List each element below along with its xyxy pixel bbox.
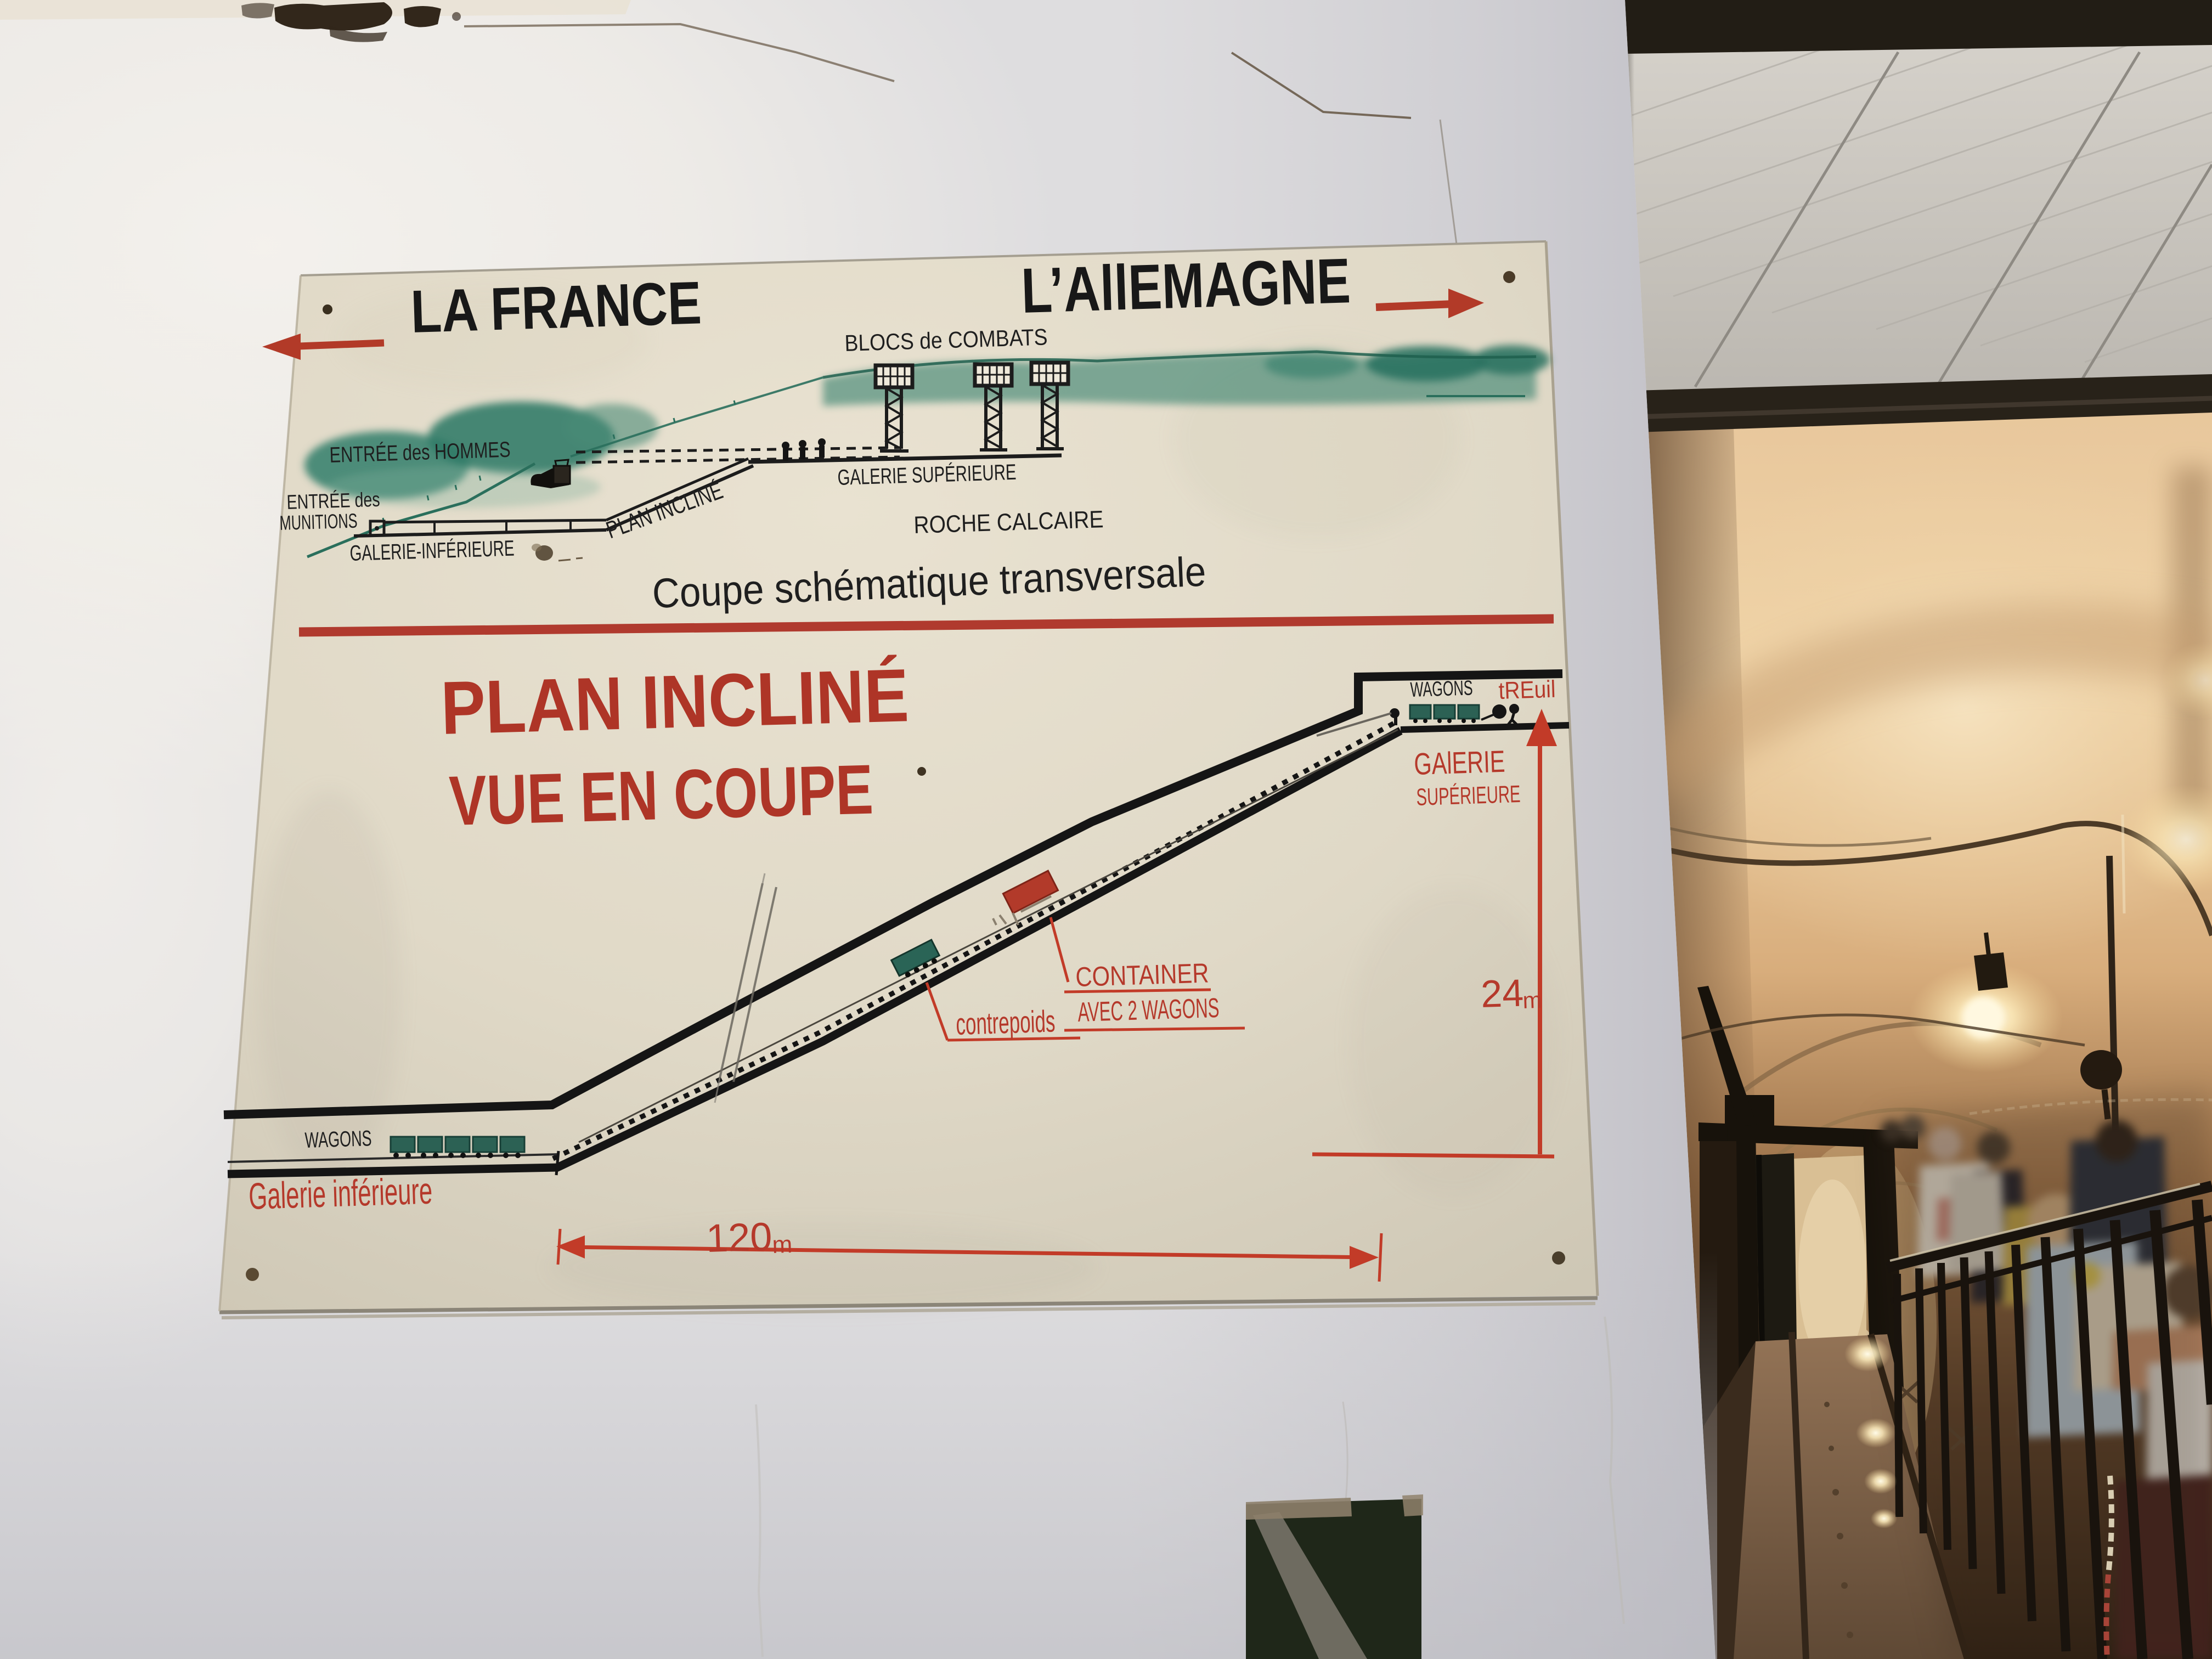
svg-text:L’AllEMAGNE: L’AllEMAGNE <box>1020 245 1352 326</box>
svg-text:WAGONS: WAGONS <box>1410 676 1473 702</box>
svg-text:GALERIE-INFÉRIEURE: GALERIE-INFÉRIEURE <box>349 536 515 566</box>
svg-text:m: m <box>772 1231 793 1259</box>
svg-text:24: 24 <box>1480 972 1524 1015</box>
svg-text:AVEC 2 WAGONS: AVEC 2 WAGONS <box>1077 992 1220 1028</box>
svg-text:PLAN INCLINÉ: PLAN INCLINÉ <box>440 653 910 751</box>
svg-text:GAlERIE: GAlERIE <box>1413 744 1505 781</box>
svg-text:contrepoids: contrepoids <box>955 1003 1056 1041</box>
svg-text:Galerie inférieure: Galerie inférieure <box>248 1170 433 1217</box>
svg-text:LA FRANCE: LA FRANCE <box>410 269 703 346</box>
svg-text:MUNITIONS: MUNITIONS <box>279 510 358 534</box>
svg-text:WAGONS: WAGONS <box>304 1126 372 1153</box>
svg-text:tREuil: tREuil <box>1498 676 1556 704</box>
svg-text:m: m <box>1522 987 1542 1013</box>
svg-text:VUE EN COUPE: VUE EN COUPE <box>448 750 874 840</box>
svg-text:SUPÉRIEURE: SUPÉRIEURE <box>1416 781 1521 811</box>
svg-text:120: 120 <box>706 1215 773 1261</box>
svg-text:CONTAINER: CONTAINER <box>1075 957 1210 992</box>
